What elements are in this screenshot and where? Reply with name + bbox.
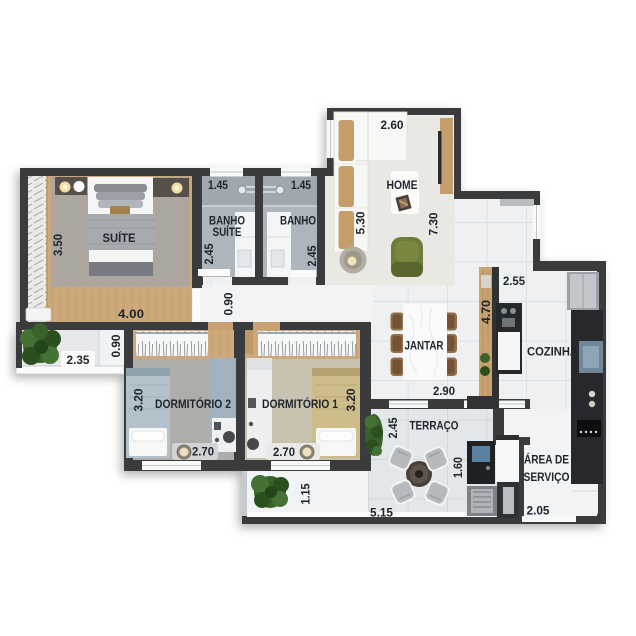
svg-text:COZINHA: COZINHA	[527, 347, 578, 359]
svg-text:DORMITÓRIO 1: DORMITÓRIO 1	[262, 398, 339, 411]
svg-text:2.45: 2.45	[307, 245, 319, 267]
svg-text:2.60: 2.60	[381, 120, 404, 132]
svg-text:2.70: 2.70	[273, 447, 295, 459]
svg-text:4.70: 4.70	[481, 300, 493, 324]
svg-text:1.15: 1.15	[301, 483, 313, 505]
svg-text:3.50: 3.50	[53, 234, 65, 256]
svg-text:1.60: 1.60	[453, 457, 465, 478]
svg-text:JANTAR: JANTAR	[405, 341, 445, 353]
svg-text:0.90: 0.90	[224, 293, 236, 316]
svg-text:ÁREA DE: ÁREA DE	[524, 454, 569, 467]
svg-text:DORMITÓRIO 2: DORMITÓRIO 2	[155, 398, 231, 411]
svg-text:4.00: 4.00	[118, 309, 144, 321]
svg-text:TERRAÇO: TERRAÇO	[410, 421, 459, 433]
svg-text:SUÍTE: SUÍTE	[213, 226, 242, 239]
svg-text:1.45: 1.45	[208, 180, 229, 192]
svg-text:2.05: 2.05	[527, 506, 551, 518]
svg-text:2.70: 2.70	[192, 447, 214, 459]
svg-text:SUÍTE: SUÍTE	[103, 232, 136, 245]
svg-text:2.45: 2.45	[388, 417, 400, 439]
svg-text:2.55: 2.55	[503, 276, 526, 288]
svg-text:BANHO: BANHO	[280, 216, 316, 228]
svg-text:3.20: 3.20	[346, 389, 358, 412]
svg-text:0.90: 0.90	[111, 335, 123, 358]
svg-text:BANHO: BANHO	[209, 216, 245, 228]
svg-text:SERVIÇO: SERVIÇO	[524, 472, 570, 484]
svg-text:5.15: 5.15	[370, 508, 394, 520]
svg-text:2.90: 2.90	[433, 386, 455, 398]
svg-text:3.20: 3.20	[134, 389, 146, 412]
svg-text:2.35: 2.35	[67, 355, 91, 367]
svg-text:2.45: 2.45	[204, 243, 216, 265]
svg-text:HOME: HOME	[387, 180, 418, 192]
svg-text:1.45: 1.45	[291, 180, 312, 192]
svg-text:5.30: 5.30	[356, 212, 368, 235]
svg-text:7.30: 7.30	[429, 213, 441, 236]
